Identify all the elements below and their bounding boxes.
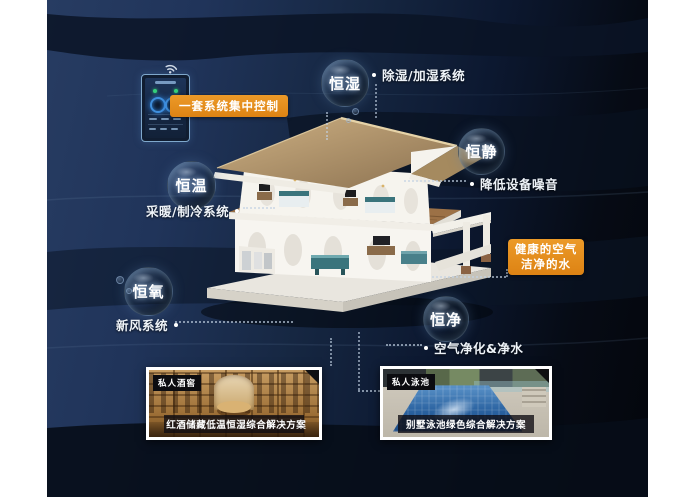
connector-line — [358, 332, 360, 390]
bubble-constant-quiet: 恒静 — [458, 128, 505, 175]
corner-ribbon-icon — [535, 369, 549, 383]
card-tag: 私人酒窖 — [153, 375, 201, 391]
connector-line — [330, 338, 332, 366]
connector-line — [432, 276, 506, 278]
central-control-tag: 一套系统集中控制 — [170, 95, 288, 117]
connector-dot — [470, 182, 474, 186]
connector-line — [404, 180, 466, 182]
connector-line — [375, 84, 377, 118]
callout-label: 采暖/制冷系统 — [146, 201, 229, 220]
connector-line — [175, 321, 293, 323]
callout-purification: 空气净化&净水 — [424, 338, 523, 357]
callout-label: 新风系统 — [116, 315, 168, 334]
connector-line — [386, 344, 422, 346]
benefit-line-2: 洁净的水 — [521, 257, 571, 272]
status-dot — [153, 89, 157, 93]
dial-gauge — [150, 97, 166, 113]
connector-dot — [424, 346, 428, 350]
wine-cellar-photo: 私人酒窖 红酒储藏低温恒湿综合解决方案 — [149, 370, 319, 437]
callout-label: 空气净化&净水 — [434, 338, 523, 357]
callout-heating-cooling: 采暖/制冷系统 — [146, 201, 239, 220]
connector-line — [358, 390, 380, 392]
connector-dot — [174, 323, 178, 327]
connector-dot — [235, 209, 239, 213]
connector-dot — [372, 73, 376, 77]
card-caption: 红酒储藏低温恒湿综合解决方案 — [164, 415, 303, 433]
wine-cellar-card: 私人酒窖 红酒储藏低温恒湿综合解决方案 — [146, 367, 322, 440]
phone-app-header — [155, 81, 176, 84]
healthy-air-water-tag: 健康的空气 洁净的水 — [508, 239, 584, 275]
pool-card: 私人泳池 别墅泳池绿色综合解决方案 — [380, 366, 552, 440]
callout-dehumidify-humidify: 除湿/加湿系统 — [372, 65, 465, 84]
infographic-panel: 一套系统集中控制 健康的空气 洁净的水 恒湿 恒静 恒温 恒氧 恒净 除湿/加湿… — [47, 0, 648, 497]
callout-fresh-air: 新风系统 — [116, 315, 178, 334]
bubble-constant-oxygen: 恒氧 — [124, 267, 173, 316]
mini-bubble — [352, 108, 359, 115]
callout-label: 除湿/加湿系统 — [382, 65, 465, 84]
connector-line — [326, 112, 328, 140]
pool-photo: 私人泳池 别墅泳池绿色综合解决方案 — [383, 369, 549, 437]
mini-bubble — [346, 118, 351, 123]
mini-bubble — [116, 276, 124, 284]
benefit-line-1: 健康的空气 — [515, 242, 578, 257]
callout-label: 降低设备噪音 — [480, 174, 558, 193]
card-tag: 私人泳池 — [387, 374, 435, 390]
status-dot — [174, 89, 178, 93]
corner-ribbon-icon — [305, 370, 319, 384]
card-caption: 别墅泳池绿色综合解决方案 — [398, 415, 534, 433]
connector-line — [243, 207, 275, 209]
callout-noise-reduction: 降低设备噪音 — [470, 174, 558, 193]
bubble-constant-humidity: 恒湿 — [321, 59, 369, 107]
bubble-constant-purity: 恒净 — [423, 296, 469, 342]
